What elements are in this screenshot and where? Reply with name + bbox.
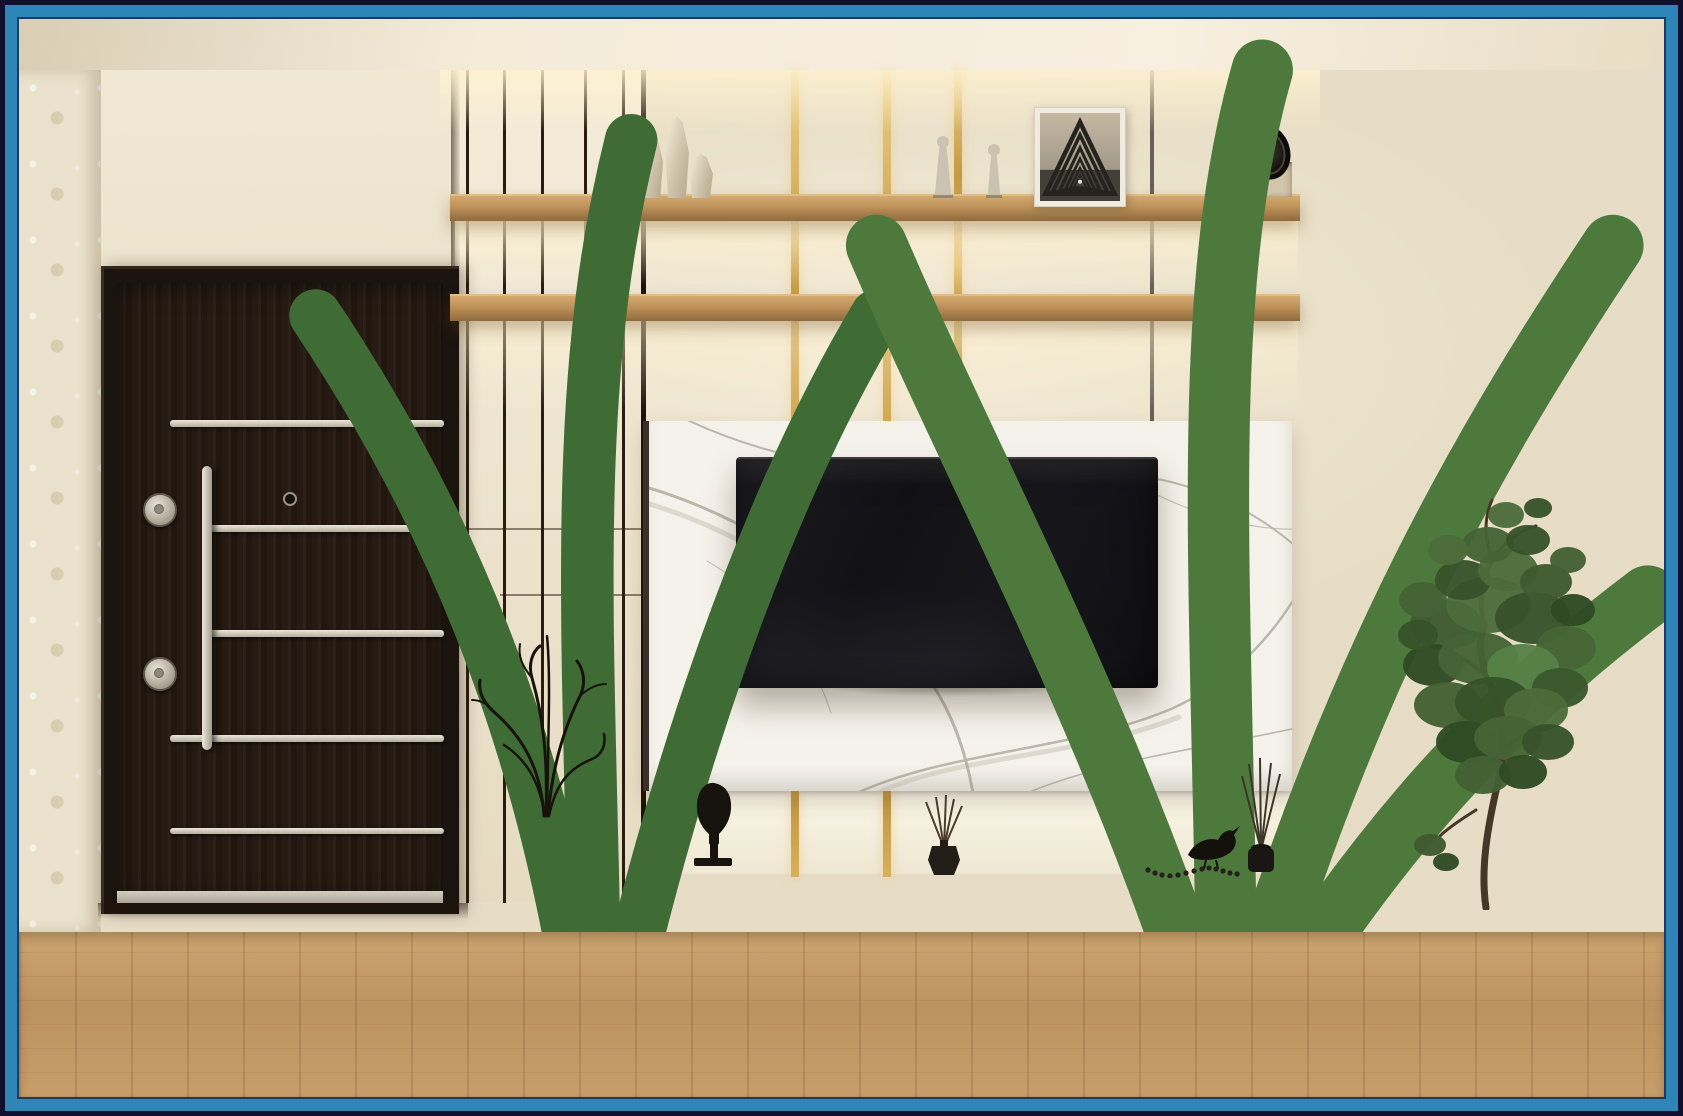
- logo-name-line1: HAMRAH: [17, 17, 69, 18]
- render-scene: S: [17, 17, 1666, 1099]
- room: S: [17, 17, 1666, 1099]
- outer-frame: S: [0, 0, 1683, 1116]
- logo-name-line2: CABINET.IR: [17, 17, 88, 18]
- bead-chain: [1144, 858, 1244, 878]
- reed-diffuser: [918, 794, 970, 876]
- dry-branches: [452, 618, 627, 818]
- wood-floor: [19, 932, 1664, 1097]
- potted-tree: [1388, 420, 1603, 910]
- reed-diffuser: [1236, 756, 1288, 874]
- watermark-text: hamrahcabinet: [17, 17, 106, 18]
- head-bust: [684, 780, 742, 874]
